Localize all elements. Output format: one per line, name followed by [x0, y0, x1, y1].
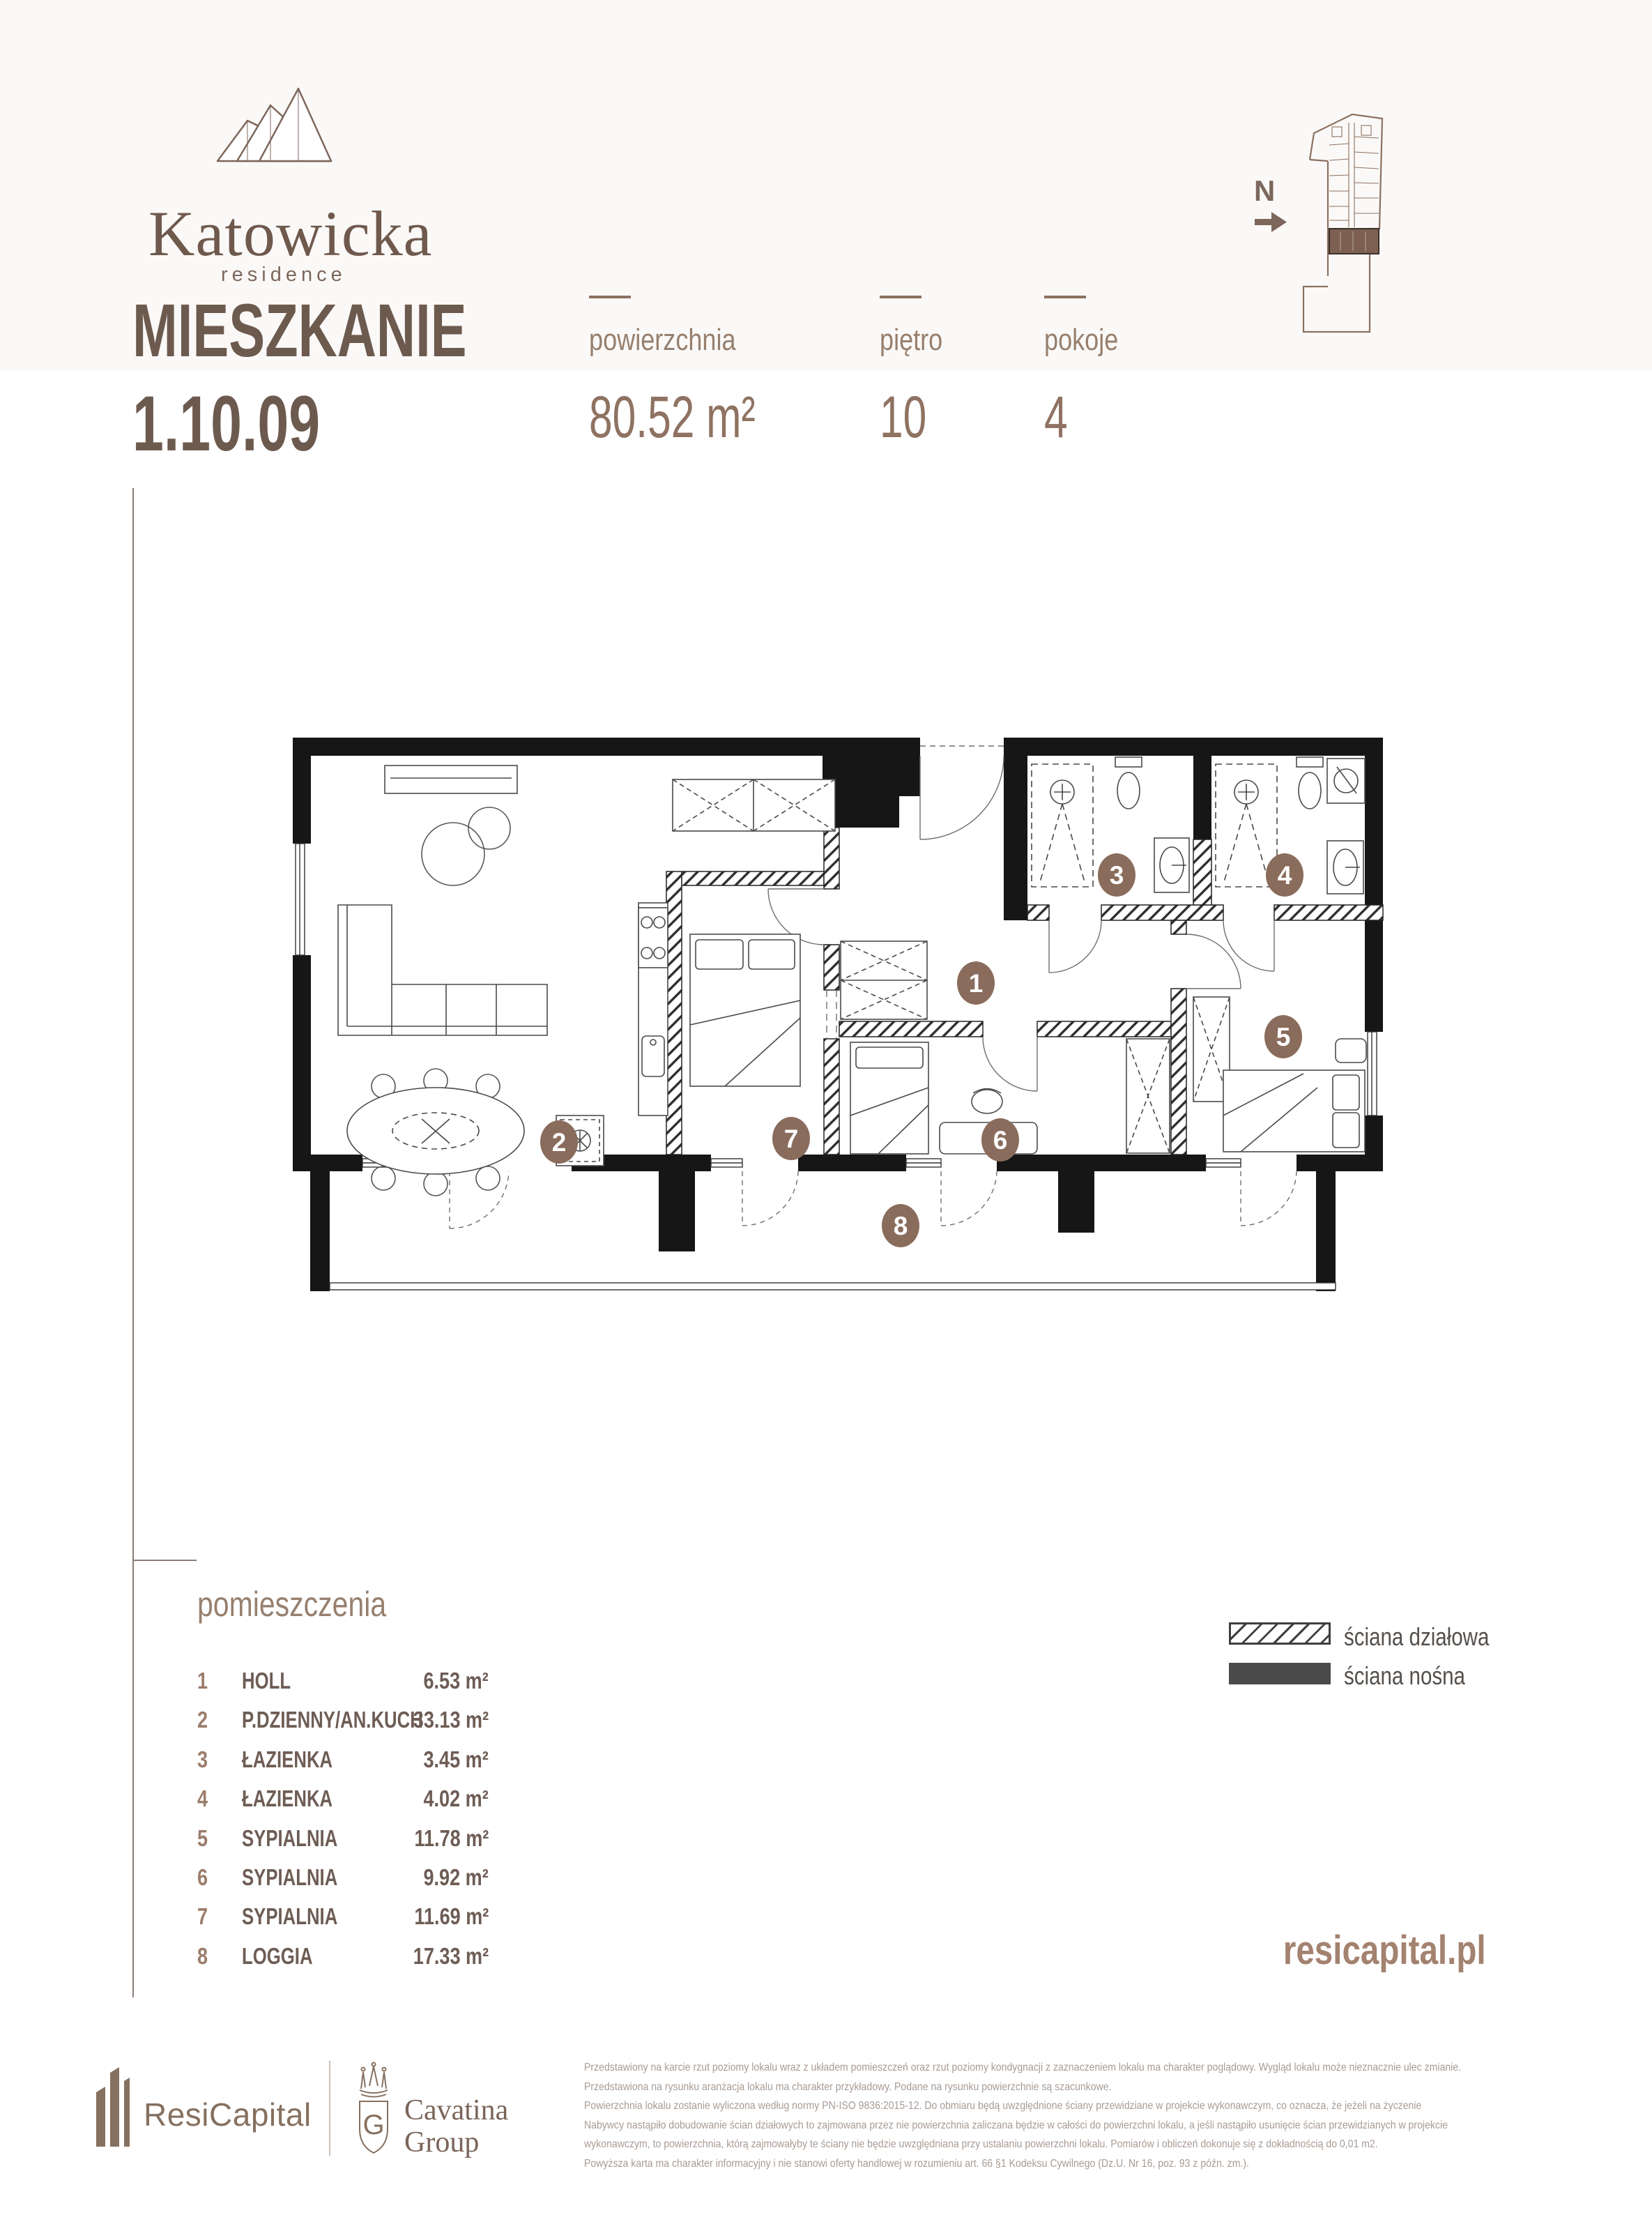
room-name: LOGGIA: [242, 1943, 332, 1970]
room-no: 3: [197, 1746, 210, 1773]
room-area: 11.69 m²: [398, 1903, 489, 1930]
tv-cabinet: [385, 766, 517, 793]
room-area: 6.53 m²: [409, 1668, 489, 1694]
badge-3: 3: [1098, 853, 1135, 897]
dining-table: [347, 1088, 524, 1174]
room-name: ŁAZIENKA: [242, 1785, 358, 1812]
floor-value: 10: [880, 388, 944, 446]
building-locator-map: [1300, 109, 1394, 342]
svg-text:1: 1: [969, 969, 984, 998]
svg-text:4: 4: [1278, 861, 1292, 890]
brand-mountains-icon: [216, 87, 335, 165]
hall-closet: [841, 941, 927, 1019]
nightstand-room5: [1336, 1039, 1366, 1063]
resicapital-logo-text: ResiCapital: [144, 2096, 312, 2133]
room-name: SYPIALNIA: [242, 1825, 365, 1852]
room-row-2: 2 P.DZIENNY/AN.KUCH 33.13 m²: [197, 1707, 489, 1746]
shower-bath3: [1032, 764, 1093, 887]
bed-room5: [1223, 1070, 1365, 1152]
washer-bath4: [1327, 759, 1365, 803]
badge-4: 4: [1266, 853, 1303, 897]
room-area: 4.02 m²: [409, 1785, 489, 1812]
badge-5: 5: [1264, 1015, 1302, 1058]
room-name: ŁAZIENKA: [242, 1746, 358, 1773]
room-no: 5: [197, 1825, 210, 1852]
floor-label: piętro: [880, 325, 956, 356]
wardrobe-room6: [1126, 1039, 1170, 1153]
svg-text:5: 5: [1276, 1023, 1291, 1051]
svg-text:6: 6: [993, 1126, 1008, 1155]
legend-load-bearing-wall-label: ściana nośna: [1344, 1663, 1492, 1689]
sink-bath4: [1327, 841, 1363, 894]
floor-plan: 1 2 3 4 5 6 7 8: [279, 725, 1394, 1325]
room-row-5: 5 SYPIALNIA 11.78 m²: [197, 1825, 489, 1864]
area-dash: [589, 296, 631, 298]
brand-subtitle: residence: [221, 264, 346, 287]
stove: [638, 908, 668, 968]
bed-room7: [690, 934, 800, 1086]
chair-room6: [972, 1089, 1002, 1114]
north-label: N: [1254, 174, 1275, 208]
room-no: 2: [197, 1707, 210, 1733]
room-row-8: 8 LOGGIA 17.33 m²: [197, 1943, 489, 1982]
decor-circles: [422, 807, 510, 885]
badge-2: 2: [540, 1120, 578, 1164]
svg-text:2: 2: [552, 1128, 567, 1157]
room-list: 1 HOLL 6.53 m² 2 P.DZIENNY/AN.KUCH 33.13…: [197, 1668, 489, 1982]
rooms-value: 4: [1044, 388, 1077, 446]
sink-bath3: [1154, 838, 1189, 892]
cavatina-g-letter: G: [362, 2110, 384, 2140]
cavatina-logo-text: Cavatina Group: [404, 2094, 508, 2158]
bed-room6: [850, 1042, 928, 1154]
footer-divider: [329, 2061, 330, 2156]
svg-text:7: 7: [784, 1125, 799, 1153]
living-closet: [673, 779, 835, 831]
room-area: 33.13 m²: [397, 1707, 489, 1733]
badge-8: 8: [882, 1204, 919, 1247]
cavatina-logo-icon: G: [353, 2061, 395, 2157]
legend-load-bearing-wall-swatch: [1229, 1663, 1331, 1684]
north-arrow-icon: [1255, 209, 1290, 234]
room-area: 9.92 m²: [409, 1864, 489, 1891]
apartment-number: 1.10.09: [132, 385, 393, 463]
rooms-dash: [1044, 296, 1086, 298]
room-name: SYPIALNIA: [242, 1903, 365, 1930]
room-list-heading: pomieszczenia: [197, 1584, 428, 1624]
toilet-bath4: [1297, 757, 1323, 809]
svg-text:3: 3: [1110, 861, 1124, 890]
room-row-6: 6 SYPIALNIA 9.92 m²: [197, 1864, 489, 1903]
list-guide-line: [132, 1560, 197, 1561]
room-no: 7: [197, 1903, 210, 1930]
room-area: 17.33 m²: [397, 1943, 489, 1970]
room-area: 11.78 m²: [398, 1825, 489, 1852]
room-no: 6: [197, 1864, 210, 1891]
legend-partition-wall-swatch: [1229, 1622, 1331, 1645]
room-name: SYPIALNIA: [242, 1864, 365, 1891]
room-no: 8: [197, 1943, 210, 1970]
highlighted-unit: [1329, 229, 1379, 254]
legend-partition-wall-label: ściana działowa: [1344, 1624, 1521, 1650]
apartment-card: Katowicka residence MIESZKANIE 1.10.09 p…: [0, 0, 1652, 2231]
room-row-4: 4 ŁAZIENKA 4.02 m²: [197, 1785, 489, 1825]
badge-7: 7: [772, 1117, 810, 1160]
sofa: [338, 905, 547, 1035]
room-name: HOLL: [242, 1668, 305, 1694]
room-no: 1: [197, 1668, 210, 1694]
room-area: 3.45 m²: [409, 1746, 489, 1773]
kitchen-sink: [642, 1036, 664, 1076]
brand-name: Katowicka: [148, 197, 433, 271]
rooms-label: pokoje: [1044, 325, 1135, 356]
area-value: 80.52 m²: [589, 388, 820, 446]
website-link[interactable]: resicapital.pl: [1185, 1927, 1486, 1974]
toilet-bath3: [1115, 757, 1142, 809]
badge-6: 6: [981, 1118, 1019, 1162]
page-title: MIESZKANIE: [132, 293, 597, 368]
floor-dash: [880, 296, 921, 298]
resicapital-logo-icon: [96, 2059, 131, 2147]
left-guide-line: [132, 488, 134, 1997]
area-label: powierzchnia: [589, 325, 768, 356]
svg-text:8: 8: [894, 1212, 908, 1240]
room-no: 4: [197, 1785, 210, 1812]
disclaimer-text: Przedstawiony na karcie rzut poziomy lok…: [584, 2058, 1581, 2173]
room-row-1: 1 HOLL 6.53 m²: [197, 1668, 489, 1707]
room-row-3: 3 ŁAZIENKA 3.45 m²: [197, 1746, 489, 1785]
room-row-7: 7 SYPIALNIA 11.69 m²: [197, 1903, 489, 1942]
badge-1: 1: [957, 961, 995, 1005]
